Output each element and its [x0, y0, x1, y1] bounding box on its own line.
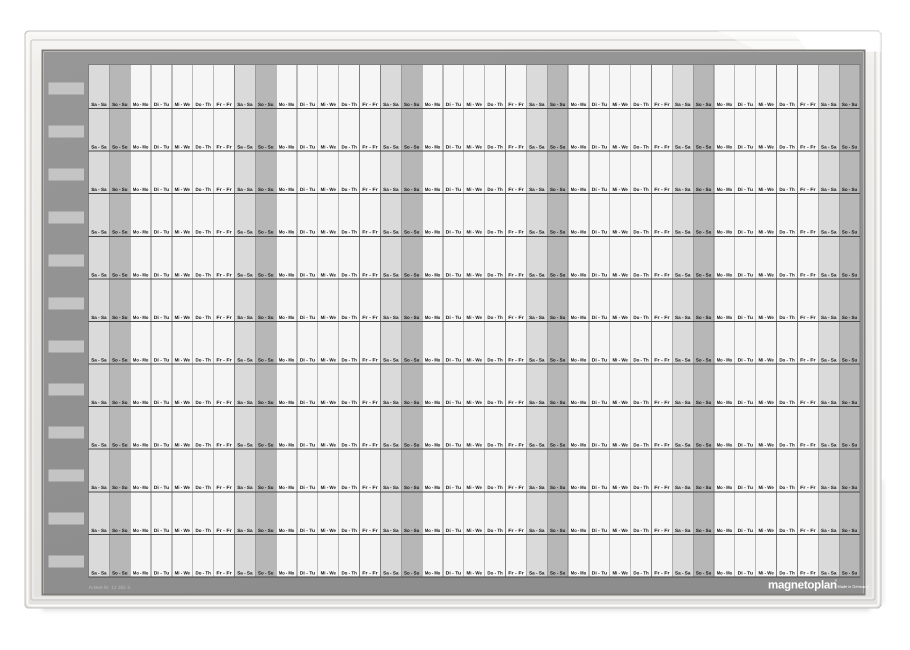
svg-text:So - Su: So - Su [112, 187, 128, 192]
svg-text:magnetoplan: magnetoplan [768, 580, 837, 592]
svg-text:Mi - We: Mi - We [467, 315, 483, 320]
svg-text:Sa - Sa: Sa - Sa [821, 400, 837, 405]
svg-text:So - Su: So - Su [112, 570, 128, 575]
svg-text:Do - Th: Do - Th [633, 528, 649, 533]
svg-text:Sa - Sa: Sa - Sa [237, 315, 253, 320]
svg-text:Sa - Sa: Sa - Sa [821, 357, 837, 362]
svg-text:So - Su: So - Su [550, 528, 566, 533]
svg-text:Mi - We: Mi - We [321, 230, 337, 235]
svg-text:Mo - Mo: Mo - Mo [717, 144, 733, 149]
svg-text:Do - Th: Do - Th [341, 485, 357, 490]
svg-text:Do - Th: Do - Th [195, 230, 211, 235]
svg-text:So - Su: So - Su [550, 230, 566, 235]
svg-text:Mi - We: Mi - We [758, 144, 774, 149]
svg-text:Do - Th: Do - Th [779, 144, 795, 149]
svg-text:Mi - We: Mi - We [613, 102, 629, 107]
svg-text:So - Su: So - Su [696, 528, 712, 533]
svg-text:So - Su: So - Su [842, 144, 858, 149]
svg-text:Di - Tu: Di - Tu [154, 528, 170, 533]
svg-text:Mo - Mo: Mo - Mo [279, 357, 295, 362]
svg-text:Mi - We: Mi - We [175, 400, 191, 405]
svg-text:Mo - Mo: Mo - Mo [279, 400, 295, 405]
svg-text:Mo - Mo: Mo - Mo [717, 272, 733, 277]
svg-text:Do - Th: Do - Th [779, 315, 795, 320]
svg-text:So - Su: So - Su [258, 187, 274, 192]
svg-text:Sa - Sa: Sa - Sa [383, 315, 399, 320]
svg-text:Do - Th: Do - Th [779, 570, 795, 575]
svg-text:So - Su: So - Su [258, 443, 274, 448]
svg-text:Mo - Mo: Mo - Mo [571, 315, 587, 320]
svg-text:Sa - Sa: Sa - Sa [529, 315, 545, 320]
svg-text:Sa - Sa: Sa - Sa [237, 357, 253, 362]
svg-text:Sa - Sa: Sa - Sa [675, 357, 691, 362]
svg-text:Di - Tu: Di - Tu [738, 443, 754, 448]
svg-text:Di - Tu: Di - Tu [300, 230, 316, 235]
svg-text:Do - Th: Do - Th [341, 315, 357, 320]
svg-text:Do - Th: Do - Th [487, 485, 503, 490]
svg-text:Mi - We: Mi - We [467, 144, 483, 149]
svg-text:So - Su: So - Su [112, 357, 128, 362]
svg-text:Mi - We: Mi - We [758, 528, 774, 533]
svg-text:So - Su: So - Su [258, 144, 274, 149]
svg-text:Di - Tu: Di - Tu [446, 570, 462, 575]
svg-text:Sa - Sa: Sa - Sa [383, 187, 399, 192]
svg-text:So - Su: So - Su [696, 570, 712, 575]
svg-text:Fr - Fr: Fr - Fr [216, 315, 232, 320]
svg-text:Fr - Fr: Fr - Fr [654, 315, 670, 320]
svg-text:Mi - We: Mi - We [175, 570, 191, 575]
svg-text:Sa - Sa: Sa - Sa [821, 102, 837, 107]
svg-text:Mo - Mo: Mo - Mo [425, 528, 441, 533]
svg-text:Di - Tu: Di - Tu [300, 187, 316, 192]
svg-text:Fr - Fr: Fr - Fr [654, 357, 670, 362]
svg-text:Do - Th: Do - Th [341, 272, 357, 277]
svg-text:Di - Tu: Di - Tu [154, 187, 170, 192]
svg-text:Sa - Sa: Sa - Sa [383, 528, 399, 533]
svg-text:Di - Tu: Di - Tu [154, 144, 170, 149]
svg-text:Do - Th: Do - Th [195, 485, 211, 490]
svg-text:Do - Th: Do - Th [487, 144, 503, 149]
svg-text:So - Su: So - Su [112, 144, 128, 149]
svg-text:Di - Tu: Di - Tu [300, 144, 316, 149]
svg-text:Mo - Mo: Mo - Mo [133, 230, 149, 235]
svg-text:Fr - Fr: Fr - Fr [362, 528, 378, 533]
svg-text:Di - Tu: Di - Tu [154, 357, 170, 362]
svg-text:Fr - Fr: Fr - Fr [508, 102, 524, 107]
svg-text:Do - Th: Do - Th [779, 230, 795, 235]
svg-text:Do - Th: Do - Th [779, 272, 795, 277]
svg-text:Di - Tu: Di - Tu [154, 272, 170, 277]
svg-text:Mo - Mo: Mo - Mo [425, 357, 441, 362]
svg-text:Mo - Mo: Mo - Mo [717, 528, 733, 533]
svg-text:Sa - Sa: Sa - Sa [91, 144, 107, 149]
svg-text:Mo - Mo: Mo - Mo [425, 570, 441, 575]
svg-text:Fr - Fr: Fr - Fr [508, 528, 524, 533]
svg-text:So - Su: So - Su [258, 570, 274, 575]
svg-text:Do - Th: Do - Th [779, 528, 795, 533]
svg-text:Fr - Fr: Fr - Fr [362, 570, 378, 575]
svg-text:Do - Th: Do - Th [341, 357, 357, 362]
svg-text:Fr - Fr: Fr - Fr [362, 144, 378, 149]
svg-text:Sa - Sa: Sa - Sa [91, 315, 107, 320]
svg-text:Mo - Mo: Mo - Mo [279, 187, 295, 192]
svg-text:So - Su: So - Su [258, 528, 274, 533]
svg-text:Fr - Fr: Fr - Fr [216, 144, 232, 149]
svg-text:Sa - Sa: Sa - Sa [383, 230, 399, 235]
svg-text:So - Su: So - Su [842, 102, 858, 107]
svg-text:So - Su: So - Su [404, 315, 420, 320]
svg-text:Sa - Sa: Sa - Sa [675, 400, 691, 405]
svg-text:Fr - Fr: Fr - Fr [654, 102, 670, 107]
svg-text:Mo - Mo: Mo - Mo [571, 485, 587, 490]
svg-text:Fr - Fr: Fr - Fr [800, 443, 816, 448]
svg-text:Sa - Sa: Sa - Sa [821, 187, 837, 192]
svg-text:Sa - Sa: Sa - Sa [529, 400, 545, 405]
svg-text:Do - Th: Do - Th [779, 357, 795, 362]
svg-text:So - Su: So - Su [112, 272, 128, 277]
svg-text:So - Su: So - Su [404, 400, 420, 405]
svg-text:So - Su: So - Su [696, 230, 712, 235]
svg-text:Di - Tu: Di - Tu [446, 230, 462, 235]
svg-text:Mi - We: Mi - We [613, 400, 629, 405]
svg-text:Di - Tu: Di - Tu [738, 570, 754, 575]
svg-text:Do - Th: Do - Th [487, 230, 503, 235]
svg-text:Sa - Sa: Sa - Sa [237, 144, 253, 149]
svg-text:Mi - We: Mi - We [758, 443, 774, 448]
svg-text:Mi - We: Mi - We [467, 187, 483, 192]
svg-text:Sa - Sa: Sa - Sa [529, 443, 545, 448]
svg-text:So - Su: So - Su [842, 230, 858, 235]
svg-text:Sa - Sa: Sa - Sa [237, 570, 253, 575]
svg-text:Fr - Fr: Fr - Fr [216, 570, 232, 575]
svg-text:Di - Tu: Di - Tu [300, 102, 316, 107]
svg-text:Sa - Sa: Sa - Sa [529, 272, 545, 277]
svg-text:Di - Tu: Di - Tu [592, 230, 608, 235]
svg-text:So - Su: So - Su [550, 272, 566, 277]
svg-text:Mo - Mo: Mo - Mo [133, 570, 149, 575]
svg-text:So - Su: So - Su [258, 272, 274, 277]
svg-text:Sa - Sa: Sa - Sa [237, 400, 253, 405]
svg-text:So - Su: So - Su [550, 357, 566, 362]
svg-text:Fr - Fr: Fr - Fr [362, 272, 378, 277]
svg-text:Di - Tu: Di - Tu [738, 528, 754, 533]
svg-text:Mi - We: Mi - We [175, 443, 191, 448]
svg-text:Do - Th: Do - Th [779, 485, 795, 490]
svg-text:Di - Tu: Di - Tu [592, 187, 608, 192]
svg-text:Do - Th: Do - Th [633, 485, 649, 490]
svg-text:Do - Th: Do - Th [487, 102, 503, 107]
svg-text:Mi - We: Mi - We [175, 315, 191, 320]
svg-text:So - Su: So - Su [842, 400, 858, 405]
svg-text:Do - Th: Do - Th [779, 187, 795, 192]
svg-text:Mi - We: Mi - We [758, 357, 774, 362]
svg-text:Mo - Mo: Mo - Mo [133, 485, 149, 490]
svg-text:Fr - Fr: Fr - Fr [216, 102, 232, 107]
svg-text:Fr - Fr: Fr - Fr [508, 187, 524, 192]
svg-text:Fr - Fr: Fr - Fr [800, 315, 816, 320]
svg-text:Do - Th: Do - Th [195, 187, 211, 192]
svg-text:Mi - We: Mi - We [175, 485, 191, 490]
svg-text:Do - Th: Do - Th [633, 187, 649, 192]
svg-text:So - Su: So - Su [842, 443, 858, 448]
svg-text:Mo - Mo: Mo - Mo [133, 400, 149, 405]
svg-text:So - Su: So - Su [404, 528, 420, 533]
svg-text:Di - Tu: Di - Tu [592, 272, 608, 277]
svg-text:Mo - Mo: Mo - Mo [133, 187, 149, 192]
svg-text:Sa - Sa: Sa - Sa [675, 272, 691, 277]
svg-text:Di - Tu: Di - Tu [300, 315, 316, 320]
svg-text:Do - Th: Do - Th [341, 230, 357, 235]
svg-text:Do - Th: Do - Th [633, 144, 649, 149]
svg-text:Sa - Sa: Sa - Sa [529, 102, 545, 107]
svg-text:Mi - We: Mi - We [613, 570, 629, 575]
svg-text:Mo - Mo: Mo - Mo [279, 230, 295, 235]
svg-text:Do - Th: Do - Th [195, 315, 211, 320]
svg-text:Sa - Sa: Sa - Sa [675, 102, 691, 107]
svg-text:So - Su: So - Su [112, 315, 128, 320]
svg-text:So - Su: So - Su [696, 187, 712, 192]
svg-text:Do - Th: Do - Th [487, 357, 503, 362]
svg-text:Di - Tu: Di - Tu [154, 570, 170, 575]
svg-text:Fr - Fr: Fr - Fr [654, 443, 670, 448]
svg-text:So - Su: So - Su [842, 570, 858, 575]
svg-text:Sa - Sa: Sa - Sa [821, 485, 837, 490]
svg-text:Do - Th: Do - Th [341, 400, 357, 405]
svg-text:Sa - Sa: Sa - Sa [821, 570, 837, 575]
svg-text:Mo - Mo: Mo - Mo [717, 357, 733, 362]
svg-text:Mi - We: Mi - We [175, 144, 191, 149]
svg-text:Di - Tu: Di - Tu [592, 357, 608, 362]
svg-text:So - Su: So - Su [112, 230, 128, 235]
svg-text:So - Su: So - Su [696, 144, 712, 149]
svg-text:Do - Th: Do - Th [633, 443, 649, 448]
svg-text:Mo - Mo: Mo - Mo [571, 443, 587, 448]
svg-text:Mo - Mo: Mo - Mo [133, 272, 149, 277]
svg-text:Mi - We: Mi - We [613, 528, 629, 533]
svg-text:Do - Th: Do - Th [633, 400, 649, 405]
svg-text:Do - Th: Do - Th [487, 528, 503, 533]
svg-text:So - Su: So - Su [550, 144, 566, 149]
svg-text:Mi - We: Mi - We [321, 102, 337, 107]
svg-text:Sa - Sa: Sa - Sa [675, 144, 691, 149]
svg-text:Artikel-Nr. 12 365 S: Artikel-Nr. 12 365 S [89, 585, 131, 591]
svg-text:Fr - Fr: Fr - Fr [216, 187, 232, 192]
svg-text:Sa - Sa: Sa - Sa [91, 485, 107, 490]
svg-text:Mi - We: Mi - We [321, 528, 337, 533]
svg-text:Mi - We: Mi - We [321, 570, 337, 575]
svg-text:Fr - Fr: Fr - Fr [800, 570, 816, 575]
svg-text:Do - Th: Do - Th [341, 528, 357, 533]
svg-text:Do - Th: Do - Th [779, 443, 795, 448]
svg-text:Fr - Fr: Fr - Fr [216, 357, 232, 362]
svg-text:Sa - Sa: Sa - Sa [237, 187, 253, 192]
svg-text:So - Su: So - Su [404, 443, 420, 448]
svg-text:Do - Th: Do - Th [633, 102, 649, 107]
svg-text:Fr - Fr: Fr - Fr [508, 485, 524, 490]
svg-text:Sa - Sa: Sa - Sa [383, 144, 399, 149]
svg-text:So - Su: So - Su [696, 315, 712, 320]
svg-text:So - Su: So - Su [696, 272, 712, 277]
svg-text:Mi - We: Mi - We [321, 357, 337, 362]
svg-text:Fr - Fr: Fr - Fr [800, 144, 816, 149]
svg-text:Mo - Mo: Mo - Mo [717, 400, 733, 405]
svg-text:Mo - Mo: Mo - Mo [133, 315, 149, 320]
svg-text:Mi - We: Mi - We [758, 187, 774, 192]
svg-text:Mi - We: Mi - We [467, 485, 483, 490]
svg-text:So - Su: So - Su [550, 570, 566, 575]
svg-text:Di - Tu: Di - Tu [446, 400, 462, 405]
svg-text:So - Su: So - Su [258, 357, 274, 362]
svg-text:Fr - Fr: Fr - Fr [800, 528, 816, 533]
svg-text:Do - Th: Do - Th [487, 187, 503, 192]
svg-text:So - Su: So - Su [258, 102, 274, 107]
svg-text:Fr - Fr: Fr - Fr [654, 570, 670, 575]
svg-text:Sa - Sa: Sa - Sa [675, 528, 691, 533]
svg-text:Mi - We: Mi - We [175, 187, 191, 192]
svg-text:Fr - Fr: Fr - Fr [216, 528, 232, 533]
svg-text:So - Su: So - Su [404, 272, 420, 277]
svg-text:So - Su: So - Su [550, 443, 566, 448]
svg-text:Mo - Mo: Mo - Mo [717, 230, 733, 235]
svg-text:Mi - We: Mi - We [467, 102, 483, 107]
svg-text:Mi - We: Mi - We [321, 315, 337, 320]
svg-text:Sa - Sa: Sa - Sa [675, 570, 691, 575]
svg-text:So - Su: So - Su [550, 400, 566, 405]
svg-text:Mi - We: Mi - We [175, 357, 191, 362]
svg-text:Sa - Sa: Sa - Sa [91, 528, 107, 533]
svg-text:Mi - We: Mi - We [613, 144, 629, 149]
svg-text:Fr - Fr: Fr - Fr [508, 272, 524, 277]
svg-text:Fr - Fr: Fr - Fr [216, 443, 232, 448]
svg-text:Sa - Sa: Sa - Sa [383, 400, 399, 405]
svg-text:Di - Tu: Di - Tu [446, 443, 462, 448]
svg-text:Mo - Mo: Mo - Mo [717, 443, 733, 448]
svg-text:Do - Th: Do - Th [195, 400, 211, 405]
svg-text:Di - Tu: Di - Tu [446, 102, 462, 107]
svg-text:Mi - We: Mi - We [467, 400, 483, 405]
svg-text:So - Su: So - Su [404, 144, 420, 149]
svg-text:Mi - We: Mi - We [321, 272, 337, 277]
svg-text:Mi - We: Mi - We [321, 485, 337, 490]
svg-text:Di - Tu: Di - Tu [154, 443, 170, 448]
svg-text:So - Su: So - Su [404, 187, 420, 192]
svg-text:Do - Th: Do - Th [487, 272, 503, 277]
svg-text:Fr - Fr: Fr - Fr [800, 187, 816, 192]
svg-text:Mi - We: Mi - We [758, 102, 774, 107]
svg-text:Mo - Mo: Mo - Mo [717, 315, 733, 320]
svg-text:Mo - Mo: Mo - Mo [425, 187, 441, 192]
svg-text:Di - Tu: Di - Tu [592, 400, 608, 405]
svg-text:Di - Tu: Di - Tu [300, 272, 316, 277]
svg-text:Fr - Fr: Fr - Fr [362, 102, 378, 107]
svg-text:Mi - We: Mi - We [321, 144, 337, 149]
svg-text:Di - Tu: Di - Tu [446, 357, 462, 362]
svg-text:Sa - Sa: Sa - Sa [237, 443, 253, 448]
svg-text:Di - Tu: Di - Tu [738, 230, 754, 235]
svg-text:Fr - Fr: Fr - Fr [508, 570, 524, 575]
svg-text:Sa - Sa: Sa - Sa [91, 400, 107, 405]
svg-text:Mo - Mo: Mo - Mo [133, 528, 149, 533]
svg-text:Di - Tu: Di - Tu [738, 272, 754, 277]
svg-text:Sa - Sa: Sa - Sa [675, 443, 691, 448]
svg-text:So - Su: So - Su [404, 485, 420, 490]
svg-text:Mi - We: Mi - We [613, 230, 629, 235]
svg-text:Sa - Sa: Sa - Sa [529, 528, 545, 533]
svg-text:So - Su: So - Su [550, 102, 566, 107]
svg-text:Sa - Sa: Sa - Sa [529, 570, 545, 575]
svg-text:So - Su: So - Su [258, 485, 274, 490]
svg-text:Sa - Sa: Sa - Sa [529, 144, 545, 149]
svg-text:Mi - We: Mi - We [613, 485, 629, 490]
svg-text:Sa - Sa: Sa - Sa [91, 570, 107, 575]
svg-text:Di - Tu: Di - Tu [592, 443, 608, 448]
svg-text:So - Su: So - Su [258, 230, 274, 235]
svg-text:So - Su: So - Su [696, 400, 712, 405]
svg-text:So - Su: So - Su [404, 230, 420, 235]
svg-text:Mi - We: Mi - We [758, 485, 774, 490]
svg-text:Di - Tu: Di - Tu [738, 315, 754, 320]
svg-text:Mo - Mo: Mo - Mo [133, 144, 149, 149]
svg-text:Fr - Fr: Fr - Fr [654, 528, 670, 533]
svg-text:Fr - Fr: Fr - Fr [800, 272, 816, 277]
svg-text:Mi - We: Mi - We [321, 400, 337, 405]
svg-text:Di - Tu: Di - Tu [738, 357, 754, 362]
svg-text:Sa - Sa: Sa - Sa [675, 187, 691, 192]
svg-text:Fr - Fr: Fr - Fr [654, 144, 670, 149]
svg-text:So - Su: So - Su [842, 357, 858, 362]
svg-text:So - Su: So - Su [696, 357, 712, 362]
svg-text:Mo - Mo: Mo - Mo [425, 400, 441, 405]
svg-text:Di - Tu: Di - Tu [300, 357, 316, 362]
svg-text:Fr - Fr: Fr - Fr [800, 485, 816, 490]
svg-text:Sa - Sa: Sa - Sa [237, 272, 253, 277]
svg-text:Sa - Sa: Sa - Sa [821, 528, 837, 533]
svg-text:Mi - We: Mi - We [175, 272, 191, 277]
svg-text:Mo - Mo: Mo - Mo [425, 315, 441, 320]
svg-text:Di - Tu: Di - Tu [592, 315, 608, 320]
svg-text:Do - Th: Do - Th [341, 570, 357, 575]
svg-text:Sa - Sa: Sa - Sa [237, 528, 253, 533]
svg-text:Sa - Sa: Sa - Sa [675, 315, 691, 320]
svg-text:Sa - Sa: Sa - Sa [91, 187, 107, 192]
svg-text:Mo - Mo: Mo - Mo [279, 102, 295, 107]
svg-text:Di - Tu: Di - Tu [154, 400, 170, 405]
svg-text:Do - Th: Do - Th [779, 102, 795, 107]
svg-text:Sa - Sa: Sa - Sa [383, 272, 399, 277]
svg-text:Mi - We: Mi - We [175, 102, 191, 107]
svg-text:Do - Th: Do - Th [341, 443, 357, 448]
svg-text:Fr - Fr: Fr - Fr [654, 272, 670, 277]
svg-text:Di - Tu: Di - Tu [300, 485, 316, 490]
svg-text:Do - Th: Do - Th [341, 102, 357, 107]
svg-text:Mo - Mo: Mo - Mo [279, 528, 295, 533]
svg-text:Mo - Mo: Mo - Mo [717, 485, 733, 490]
svg-text:Sa - Sa: Sa - Sa [383, 485, 399, 490]
svg-text:Sa - Sa: Sa - Sa [383, 357, 399, 362]
svg-text:So - Su: So - Su [112, 102, 128, 107]
svg-text:Do - Th: Do - Th [195, 528, 211, 533]
svg-text:Fr - Fr: Fr - Fr [508, 315, 524, 320]
svg-text:Do - Th: Do - Th [195, 272, 211, 277]
svg-text:So - Su: So - Su [258, 315, 274, 320]
svg-text:Mo - Mo: Mo - Mo [571, 528, 587, 533]
svg-text:So - Su: So - Su [842, 272, 858, 277]
svg-text:Fr - Fr: Fr - Fr [362, 400, 378, 405]
svg-text:Fr - Fr: Fr - Fr [800, 357, 816, 362]
svg-text:Sa - Sa: Sa - Sa [237, 102, 253, 107]
svg-text:So - Su: So - Su [404, 570, 420, 575]
svg-text:Mi - We: Mi - We [613, 315, 629, 320]
